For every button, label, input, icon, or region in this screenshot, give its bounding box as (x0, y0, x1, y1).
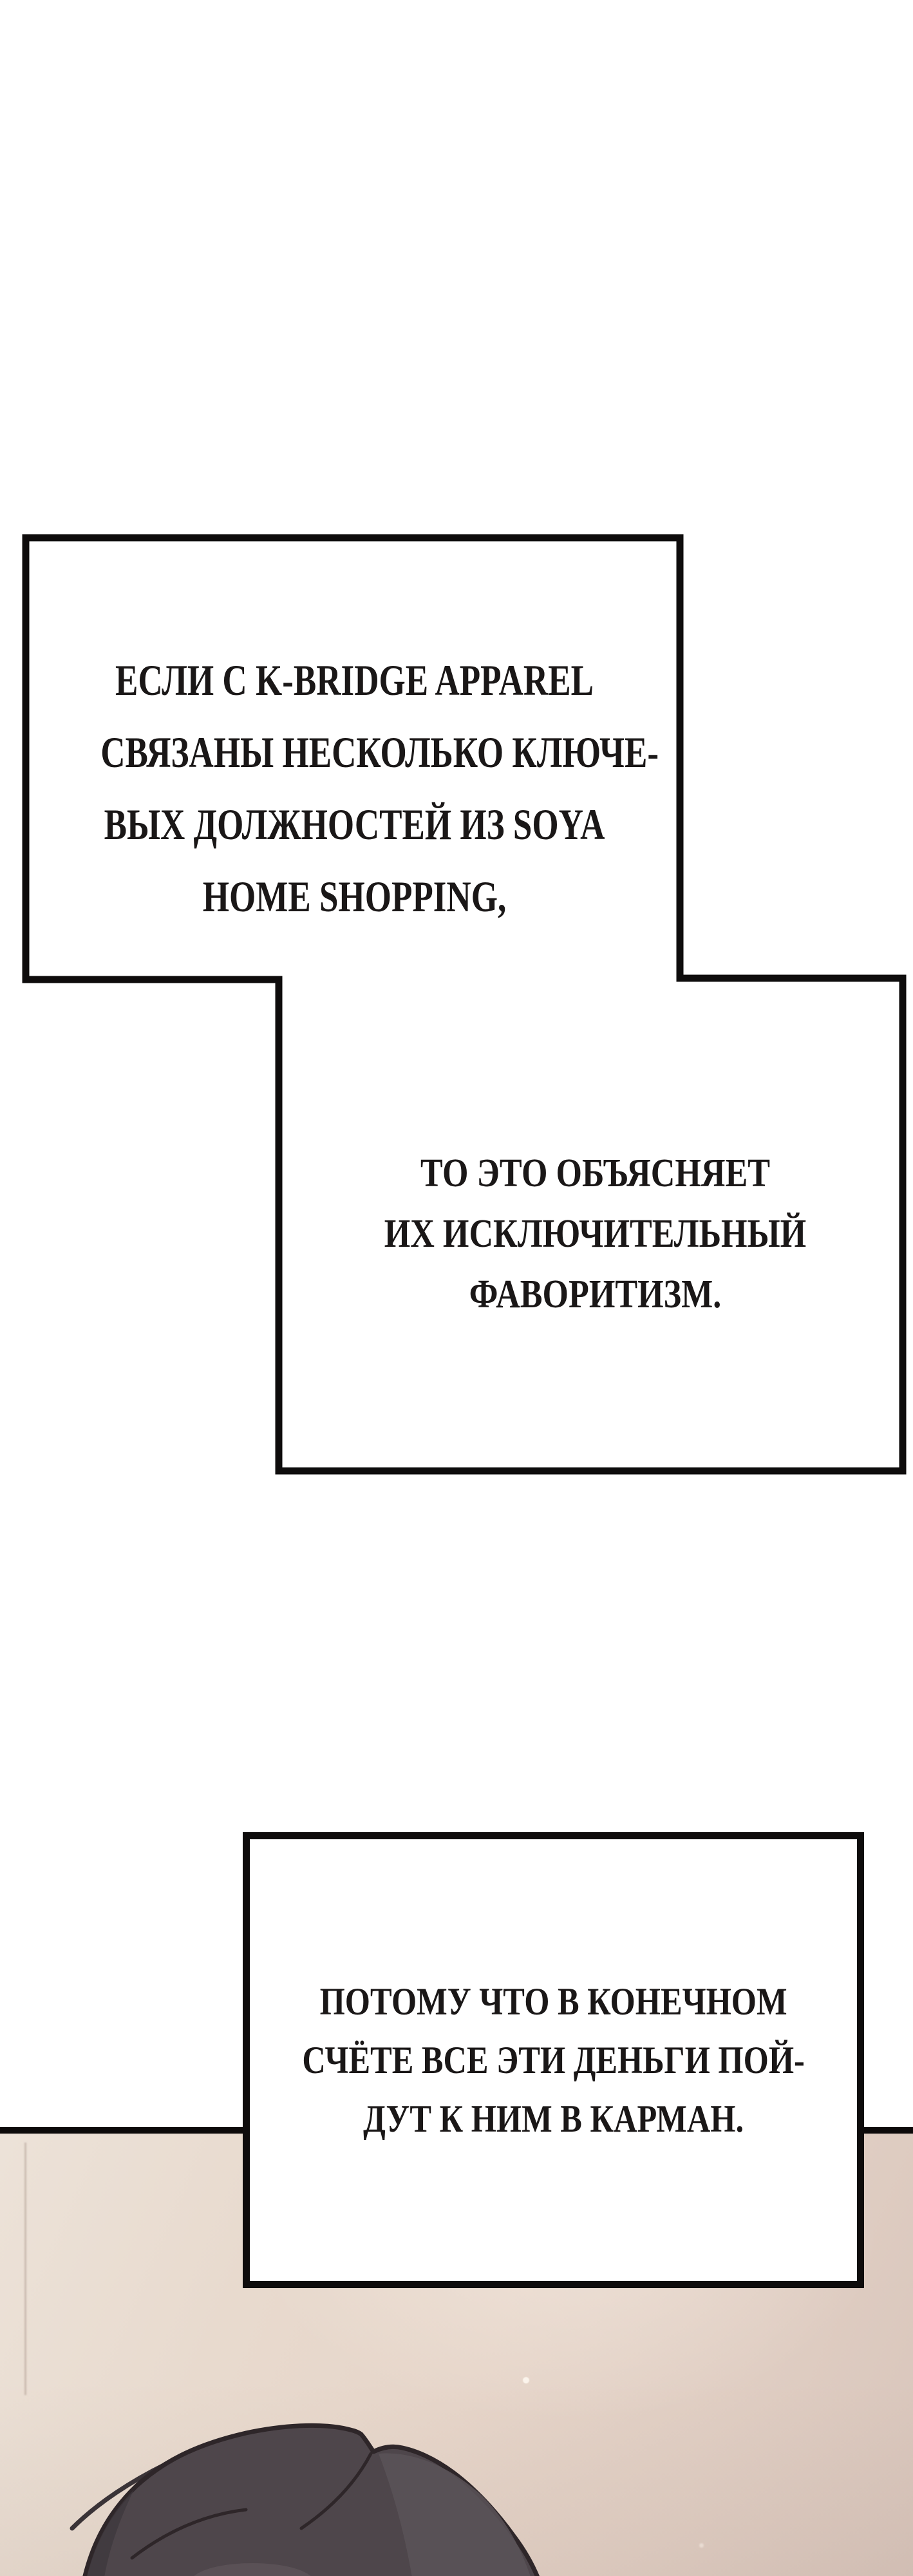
caption-box-3: ПОТОМУ ЧТО В КОНЕЧНОМ СЧЁТЕ ВСЕ ЭТИ ДЕНЬ… (243, 1832, 864, 2288)
caption-box-2: ТО ЭТО ОБЪЯСНЯЕТ ИХ ИСКЛЮЧИТЕЛЬНЫЙ ФАВОР… (281, 1143, 910, 1325)
caption-2-text: ТО ЭТО ОБЪЯСНЯЕТ ИХ ИСКЛЮЧИТЕЛЬНЫЙ ФАВОР… (331, 1143, 860, 1325)
caption-line: СВЯЗАНЫ НЕСКОЛЬКО КЛЮЧЕ- (100, 716, 608, 788)
caption-line: ДУТ К НИМ В КАРМАН. (302, 2090, 804, 2148)
caption-line: HOME SHOPPING, (100, 860, 608, 933)
caption-line: ПОТОМУ ЧТО В КОНЕЧНОМ (302, 1973, 804, 2031)
caption-1-text: ЕСЛИ С K-BRIDGE APPAREL СВЯЗАНЫ НЕСКОЛЬК… (100, 644, 608, 933)
caption-line: ТО ЭТО ОБЪЯСНЯЕТ (331, 1143, 860, 1204)
caption-box-1: ЕСЛИ С K-BRIDGE APPAREL СВЯЗАНЫ НЕСКОЛЬК… (29, 644, 680, 933)
caption-line: ЕСЛИ С K-BRIDGE APPAREL (100, 644, 608, 716)
caption-line: ИХ ИСКЛЮЧИТЕЛЬНЫЙ (331, 1204, 860, 1264)
caption-3-text: ПОТОМУ ЧТО В КОНЕЧНОМ СЧЁТЕ ВСЕ ЭТИ ДЕНЬ… (302, 1973, 804, 2148)
caption-line: СЧЁТЕ ВСЕ ЭТИ ДЕНЬГИ ПОЙ- (302, 2031, 804, 2090)
caption-line: ВЫХ ДОЛЖНОСТЕЙ ИЗ SOYA (100, 788, 608, 860)
caption-line: ФАВОРИТИЗМ. (331, 1264, 860, 1325)
webtoon-page: ЕСЛИ С K-BRIDGE APPAREL СВЯЗАНЫ НЕСКОЛЬК… (0, 0, 913, 2576)
